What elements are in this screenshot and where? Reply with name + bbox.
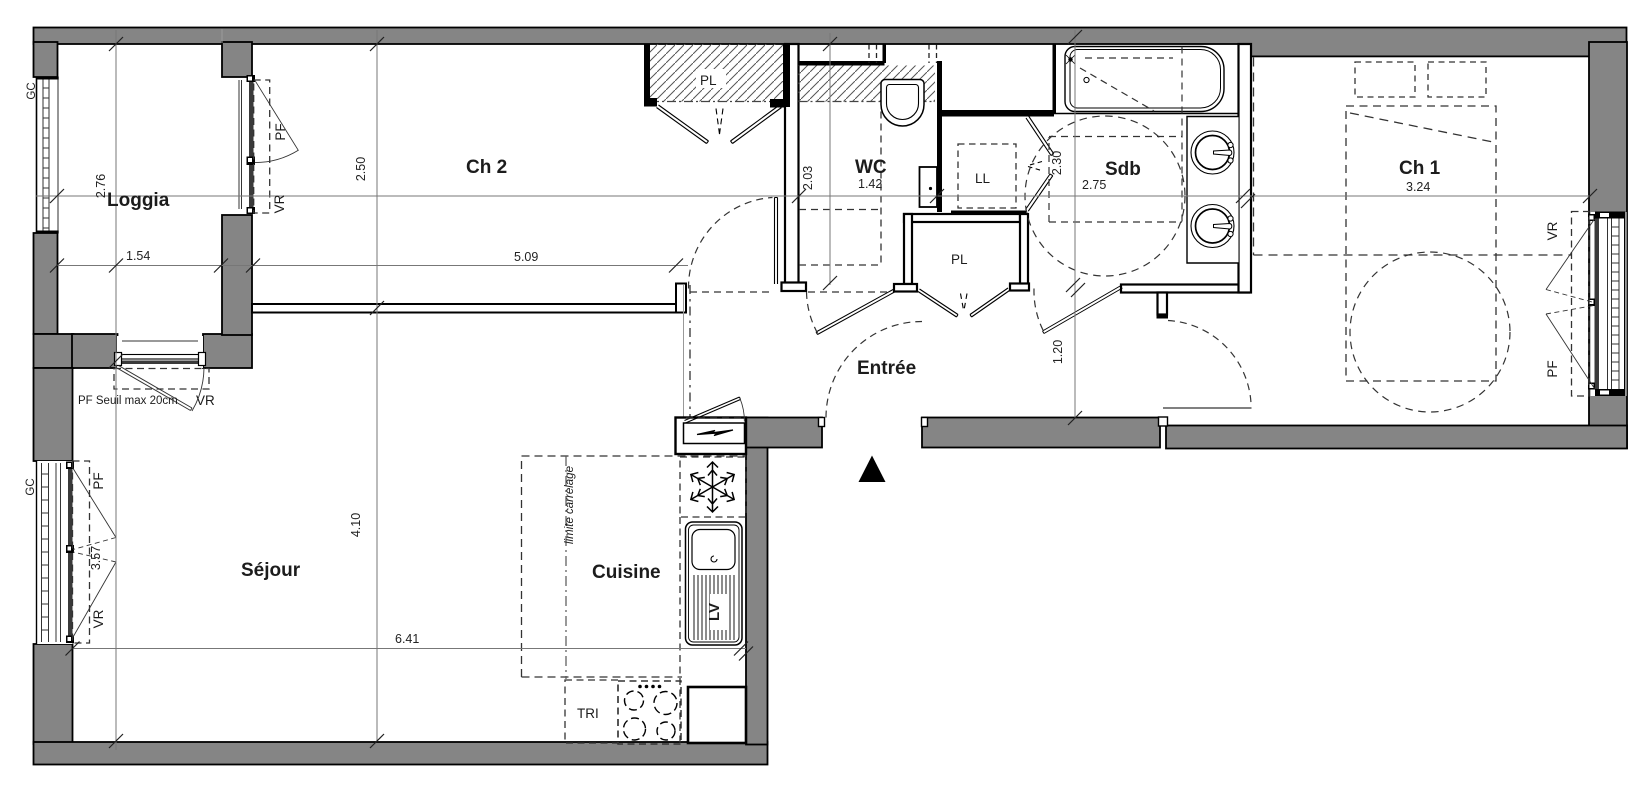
svg-text:1.20: 1.20 xyxy=(1051,340,1065,364)
svg-text:Séjour: Séjour xyxy=(241,560,301,581)
svg-text:Cuisine: Cuisine xyxy=(592,562,661,583)
svg-text:PF Seuil max 20cm: PF Seuil max 20cm xyxy=(78,395,178,407)
svg-text:PL: PL xyxy=(700,73,717,88)
svg-text:1.42: 1.42 xyxy=(858,177,882,191)
svg-text:WC: WC xyxy=(855,157,887,178)
svg-text:Ch 2: Ch 2 xyxy=(466,157,507,178)
svg-text:VR: VR xyxy=(196,393,215,408)
svg-text:Entrée: Entrée xyxy=(857,358,916,379)
svg-text:Sdb: Sdb xyxy=(1105,159,1141,180)
svg-text:Ch 1: Ch 1 xyxy=(1399,158,1441,179)
svg-text:PF: PF xyxy=(1545,360,1560,377)
svg-text:PF: PF xyxy=(91,472,106,489)
svg-text:1.54: 1.54 xyxy=(126,249,150,263)
svg-text:3.57: 3.57 xyxy=(89,546,103,570)
svg-text:PL: PL xyxy=(951,252,968,267)
svg-text:5.09: 5.09 xyxy=(514,250,538,264)
svg-text:6.41: 6.41 xyxy=(395,632,419,646)
svg-text:PF: PF xyxy=(273,123,288,140)
svg-text:VR: VR xyxy=(1545,221,1560,240)
svg-text:Loggia: Loggia xyxy=(107,190,170,211)
svg-text:GC: GC xyxy=(25,478,37,495)
svg-text:VR: VR xyxy=(272,194,287,213)
svg-text:2.75: 2.75 xyxy=(1082,178,1106,192)
svg-text:GC: GC xyxy=(26,82,38,99)
svg-text:2.76: 2.76 xyxy=(94,174,108,198)
svg-text:3.24: 3.24 xyxy=(1406,180,1430,194)
svg-text:4.10: 4.10 xyxy=(349,513,363,537)
svg-text:2.03: 2.03 xyxy=(801,166,815,190)
svg-text:2.30: 2.30 xyxy=(1050,151,1064,175)
svg-text:LV: LV xyxy=(706,603,723,621)
svg-text:LL: LL xyxy=(975,171,991,186)
svg-text:VR: VR xyxy=(91,609,106,628)
svg-text:TRI: TRI xyxy=(577,706,599,721)
svg-text:2.50: 2.50 xyxy=(354,157,368,181)
svg-text:limite carrelage: limite carrelage xyxy=(564,466,576,544)
